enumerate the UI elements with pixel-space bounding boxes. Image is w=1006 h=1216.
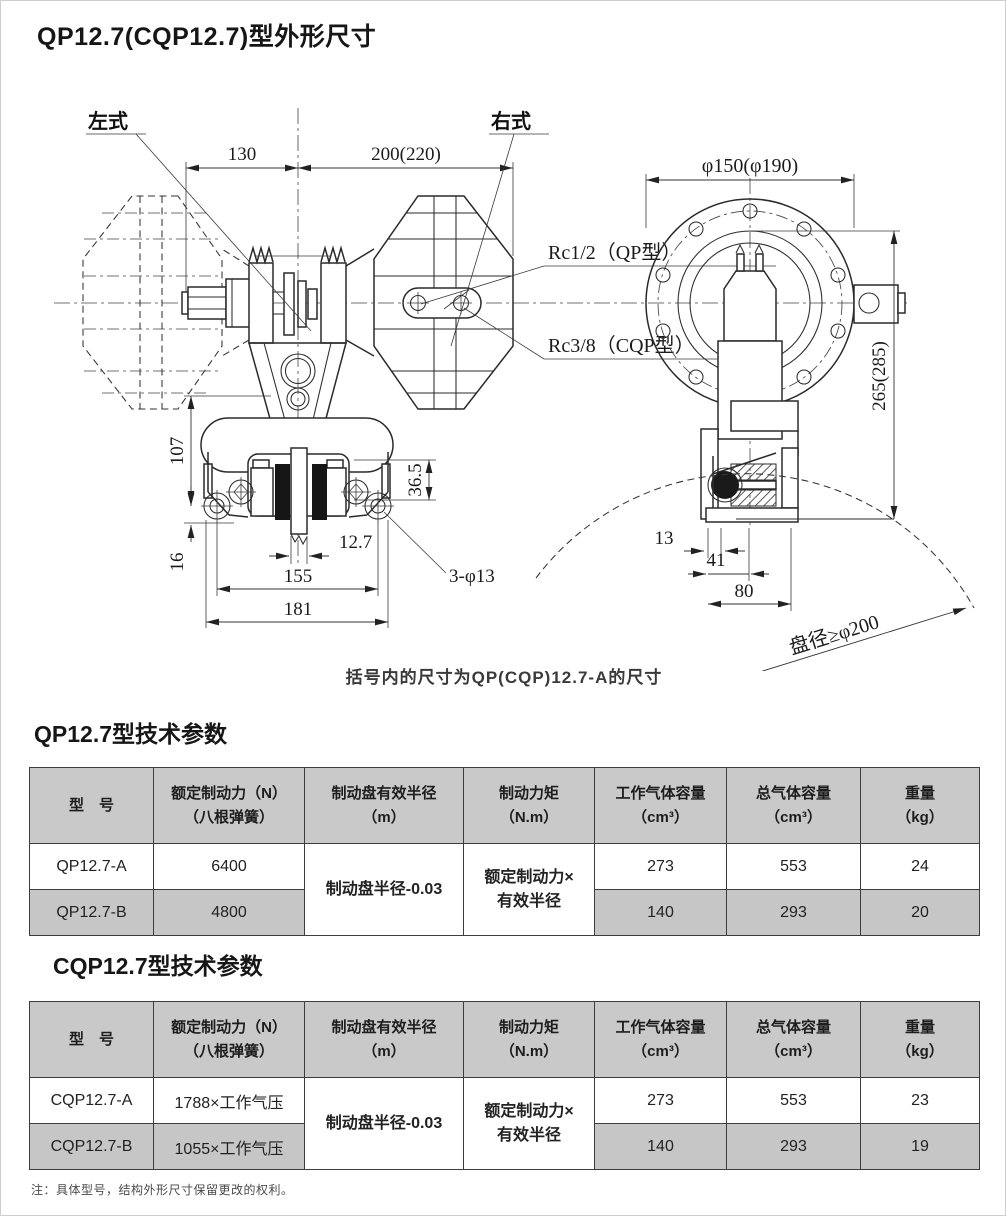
side-view-dimensions: φ150(φ190) 265(285) 13 41 80 盘径≥φ200 — [646, 155, 966, 671]
dim-265: 265(285) — [869, 341, 890, 411]
label-disc-diameter: 盘径≥φ200 — [786, 610, 881, 659]
table-header-row: 型 号 额定制动力（N）（八根弹簧） 制动盘有效半径（m） 制动力矩（N.m） … — [30, 1002, 980, 1078]
cqp-spec-table: 型 号 额定制动力（N）（八根弹簧） 制动盘有效半径（m） 制动力矩（N.m） … — [29, 1001, 980, 1170]
qp-spec-table: 型 号 额定制动力（N）（八根弹簧） 制动盘有效半径（m） 制动力矩（N.m） … — [29, 767, 980, 936]
dim-107: 107 — [167, 437, 188, 466]
dim-200-220: 200(220) — [371, 144, 441, 165]
page-title: QP12.7(CQP12.7)型外形尺寸 — [37, 17, 376, 53]
table1-title: QP12.7型技术参数 — [34, 715, 227, 749]
dim-dia150: φ150(φ190) — [702, 155, 798, 177]
footnote: 注：具体型号，结构外形尺寸保留更改的权利。 — [31, 1181, 294, 1198]
spring-symbol-right — [321, 248, 345, 262]
dim-12-7: 12.7 — [339, 532, 372, 553]
dim-36-5: 36.5 — [405, 463, 426, 496]
label-right-type: 右式 — [491, 109, 531, 133]
datasheet-page: QP12.7(CQP12.7)型外形尺寸 — [0, 0, 1006, 1216]
merged-radius-cell: 制动盘半径-0.03 — [305, 844, 464, 936]
dim-16: 16 — [167, 553, 188, 572]
table2-title: CQP12.7型技术参数 — [53, 947, 263, 981]
dim-80: 80 — [735, 581, 754, 602]
dim-13: 13 — [655, 528, 674, 549]
merged-torque-cell: 额定制动力×有效半径 — [464, 844, 595, 936]
label-rc-qp: Rc1/2（QP型） — [548, 241, 681, 264]
model-cell: QP12.7-B — [30, 890, 154, 936]
merged-radius-cell: 制动盘半径-0.03 — [305, 1078, 464, 1170]
col-model: 型 号 — [69, 797, 114, 814]
brake-disc-blade — [291, 448, 307, 534]
dim-130: 130 — [228, 144, 257, 165]
model-cell: QP12.7-A — [30, 844, 154, 890]
spring-symbol-left — [249, 248, 273, 262]
dim-3-holes: 3-φ13 — [449, 566, 495, 587]
drawing-caption: 括号内的尺寸为QP(CQP)12.7-A的尺寸 — [1, 663, 1006, 688]
dim-41: 41 — [707, 550, 726, 571]
label-left-type: 左式 — [88, 109, 128, 133]
dim-155: 155 — [284, 566, 313, 587]
col-model: 型 号 — [69, 1031, 114, 1048]
friction-pad-right — [312, 464, 327, 520]
dimension-drawing: 130 200(220) 左式 右式 Rc1/2（QP型） Rc3/8（CQP型… — [36, 96, 976, 671]
table-row: QP12.7-A 6400 制动盘半径-0.03 额定制动力×有效半径 273 … — [30, 844, 980, 890]
model-cell: CQP12.7-A — [30, 1078, 154, 1124]
merged-torque-cell: 额定制动力×有效半径 — [464, 1078, 595, 1170]
table-header-row: 型 号 额定制动力（N）（八根弹簧） 制动盘有效半径（m） 制动力矩（N.m） … — [30, 768, 980, 844]
dim-181: 181 — [284, 599, 313, 620]
model-cell: CQP12.7-B — [30, 1124, 154, 1170]
brake-outline-drawing: 130 200(220) 左式 右式 Rc1/2（QP型） Rc3/8（CQP型… — [36, 96, 976, 671]
friction-pad-left — [275, 464, 290, 520]
right-mount-cylinder — [366, 196, 521, 409]
table-row: CQP12.7-A 1788×工作气压 制动盘半径-0.03 额定制动力×有效半… — [30, 1078, 980, 1124]
